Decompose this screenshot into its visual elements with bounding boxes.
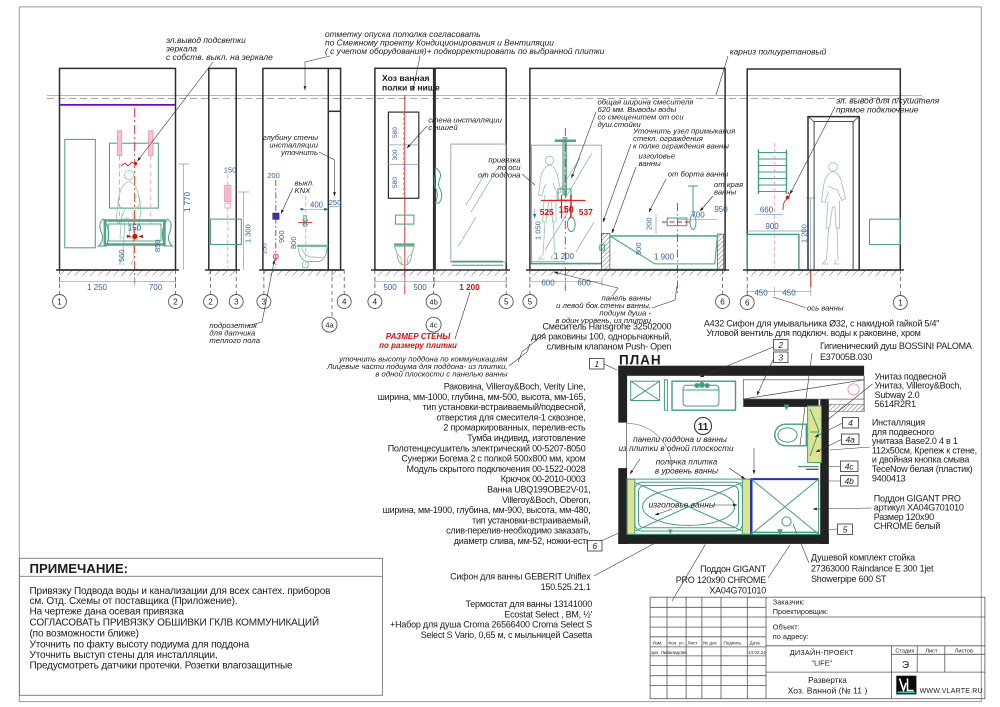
svg-text:4: 4 (342, 298, 347, 307)
svg-text:панели поддона и ванны: панели поддона и ванны (633, 435, 727, 444)
svg-text:700: 700 (691, 211, 705, 220)
svg-text:5: 5 (528, 298, 533, 307)
svg-text:ширина, мм-1900, глубина, мм-9: ширина, мм-1900, глубина, мм-900, высота… (383, 505, 591, 515)
svg-text:Заказчик:: Заказчик: (773, 598, 805, 607)
svg-text:450: 450 (782, 288, 796, 297)
svg-text:Развертка: Развертка (808, 676, 847, 685)
svg-text:Тумба индивид, изготовление: Тумба индивид, изготовление (467, 433, 585, 443)
svg-text:1: 1 (57, 298, 62, 307)
svg-text:Смеситель Hansgrohe 32502000: Смеситель Hansgrohe 32502000 (542, 322, 671, 332)
svg-text:5: 5 (504, 298, 509, 307)
svg-text:560: 560 (117, 249, 126, 262)
svg-text:27363000 Raindance E 300 1jet: 27363000 Raindance E 300 1jet (811, 563, 934, 573)
svg-text:580: 580 (392, 127, 399, 138)
svg-text:800: 800 (634, 242, 643, 255)
svg-text:660: 660 (760, 206, 774, 215)
svg-text:6: 6 (720, 298, 725, 307)
svg-text:в уровень ванны: в уровень ванны (655, 467, 718, 476)
svg-text:4a: 4a (845, 434, 855, 444)
svg-text:150: 150 (128, 224, 142, 233)
svg-text:Поддон GIGANT: Поддон GIGANT (700, 564, 767, 574)
svg-text:полки в нише: полки в нише (382, 83, 440, 93)
svg-text:Предусмотреть датчики протечки: Предусмотреть датчики протечки. Розетки … (30, 661, 294, 672)
svg-text:1 770: 1 770 (183, 191, 192, 212)
svg-text:На чертеже дана осевая привязк: На чертеже дана осевая привязка (30, 607, 185, 618)
svg-text:250: 250 (329, 198, 342, 207)
svg-text:Раковина, Villeroy&Boch, Verit: Раковина, Villeroy&Boch, Verity Line, (444, 382, 586, 392)
svg-text:Уточнить выступ стены для инст: Уточнить выступ стены для инсталляции, (30, 650, 218, 661)
svg-text:Проектировщик:: Проектировщик: (773, 607, 828, 616)
svg-text:1 300: 1 300 (244, 224, 253, 243)
svg-text:Объект:: Объект: (773, 623, 800, 632)
svg-text:537: 537 (579, 207, 593, 217)
svg-text:РАЗМЕР СТЕНЫ: РАЗМЕР СТЕНЫ (386, 332, 451, 341)
svg-text:Изм.: Изм. (653, 640, 663, 645)
svg-text:с нишей: с нишей (428, 123, 458, 132)
svg-text:900: 900 (277, 230, 286, 243)
svg-text:Лист: Лист (688, 640, 699, 645)
svg-text:3: 3 (234, 298, 239, 307)
svg-text:150: 150 (224, 166, 237, 175)
svg-text:4b: 4b (429, 298, 437, 307)
svg-text:CHROME белый: CHROME белый (874, 521, 941, 531)
svg-text:арх. Ливанидова: арх. Ливанидова (651, 650, 687, 655)
svg-text:ванны: ванны (714, 188, 737, 197)
svg-text:2: 2 (173, 298, 178, 307)
svg-text:1: 1 (898, 299, 903, 308)
svg-text:Листов: Листов (955, 648, 973, 654)
svg-text:Угловой вентиль для подключ. в: Угловой вентиль для подключ. воды к рако… (706, 328, 920, 338)
svg-text:Select S Vario, 0,65 м, с мыль: Select S Vario, 0,65 м, с мыльницей Case… (421, 630, 593, 640)
svg-text:+Набор для душа Croma 26566400: +Набор для душа Croma 26566400 Croma Sel… (390, 620, 592, 630)
svg-text:ванны: ванны (639, 159, 662, 168)
svg-text:прямое подключение: прямое подключение (836, 105, 919, 115)
svg-text:ширина, мм-1000, глубина, мм-5: ширина, мм-1000, глубина, мм-500, высота… (378, 392, 586, 402)
svg-text:200: 200 (267, 171, 280, 180)
svg-text:Сифон для ванны GEBERIT Unifle: Сифон для ванны GEBERIT Uniflex (450, 572, 591, 582)
svg-text:500: 500 (413, 283, 427, 292)
svg-text:E37005B.030: E37005B.030 (820, 352, 872, 362)
svg-text:Крючок 00-2010-0003: Крючок 00-2010-0003 (501, 474, 586, 484)
svg-text:950: 950 (714, 205, 728, 214)
svg-text:"LIFE": "LIFE" (812, 659, 833, 668)
svg-text:по размеру плитки: по размеру плитки (379, 341, 457, 350)
svg-text:Хоз ванная: Хоз ванная (382, 73, 430, 83)
svg-text:карниз полиуретановый: карниз полиуретановый (730, 47, 827, 57)
svg-text:Подпись: Подпись (724, 640, 743, 645)
svg-text:тип установки-встраиваемый,: тип установки-встраиваемый, (472, 515, 590, 525)
svg-text:ПРИМЕЧАНИЕ:: ПРИМЕЧАНИЕ: (30, 561, 129, 576)
svg-text:в одной плоскости с панелью в: в одной плоскости с панелью ванны (375, 370, 507, 379)
svg-text:с собств. выкл. на зеркале: с собств. выкл. на зеркале (166, 52, 273, 62)
svg-text:250: 250 (262, 243, 269, 254)
svg-text:700: 700 (149, 283, 163, 292)
svg-text:Лист: Лист (925, 648, 938, 654)
svg-text:ДИЗАЙН-ПРОЕКТ: ДИЗАЙН-ПРОЕКТ (790, 648, 855, 657)
svg-text:1 200: 1 200 (554, 252, 575, 261)
svg-text:400: 400 (310, 201, 324, 210)
svg-text:1 250: 1 250 (87, 283, 108, 292)
svg-text:от борта ванны: от борта ванны (668, 170, 729, 179)
svg-text:Хоз. Ванной (№ 11 ): Хоз. Ванной (№ 11 ) (788, 685, 868, 695)
svg-text:14.02.22: 14.02.22 (748, 650, 766, 655)
svg-text:Термостат для ванны 13141000: Термостат для ванны 13141000 (465, 599, 592, 609)
svg-text:отверстия для смесителя-1 скво: отверстия для смесителя-1 сквозное, (436, 412, 585, 422)
svg-text:теплого пола: теплого пола (209, 336, 260, 345)
svg-text:из плитки в одной плоскости: из плитки в одной плоскости (619, 444, 734, 453)
svg-text:6: 6 (592, 541, 597, 551)
svg-text:полочка плитка: полочка плитка (656, 458, 718, 467)
svg-text:1 200: 1 200 (800, 224, 809, 243)
svg-text:4a: 4a (325, 321, 334, 330)
svg-text:300: 300 (392, 149, 399, 160)
svg-text:WWW.VLARTE.RU: WWW.VLARTE.RU (920, 688, 983, 695)
svg-text:580: 580 (392, 177, 399, 188)
svg-text:Привязку Подвода воды и канали: Привязку Подвода воды и канализации для … (30, 585, 331, 597)
svg-text:Ecostat Select , BM, ½': Ecostat Select , BM, ½' (504, 609, 592, 619)
svg-text:Душевой комплект стойка: Душевой комплект стойка (811, 553, 915, 563)
svg-text:ПЛАН: ПЛАН (619, 353, 662, 368)
svg-text:сливным клапаном Push- Open: сливным клапаном Push- Open (547, 342, 672, 352)
svg-text:для раковины 100, однорычажный: для раковины 100, однорычажный, (531, 332, 671, 342)
svg-text:Дата: Дата (750, 640, 761, 645)
svg-text:800: 800 (289, 236, 298, 249)
svg-text:1 900: 1 900 (654, 253, 675, 262)
svg-text:4: 4 (373, 298, 378, 307)
svg-text:изголовье ванны: изголовье ванны (649, 500, 715, 510)
svg-text:СОГЛАСОВАТЬ ПРИВЯЗКУ ОБШИВКИ Г: СОГЛАСОВАТЬ ПРИВЯЗКУ ОБШИВКИ ГКЛВ КОММУН… (30, 616, 320, 629)
svg-text:Showerpipe 600 ST: Showerpipe 600 ST (811, 574, 887, 584)
svg-text:2: 2 (777, 340, 783, 350)
svg-text:Уточнить по факту высоту подиу: Уточнить по факту высоту подиума для под… (30, 638, 250, 650)
svg-text:1 200: 1 200 (459, 283, 480, 292)
svg-text:тип установки-встраиваемый/под: тип установки-встраиваемый/подвесной, (423, 402, 586, 412)
svg-text:Ванна UBQ199OBE2V-01,: Ванна UBQ199OBE2V-01, (487, 485, 590, 495)
svg-text:150: 150 (559, 205, 574, 215)
svg-text:5: 5 (843, 524, 848, 534)
svg-text:№ док: № док (703, 640, 717, 645)
svg-text:(по возможности ближе): (по возможности ближе) (30, 628, 139, 640)
svg-text:Сунержи Богема 2 с полкой 500x: Сунержи Богема 2 с полкой 500x800 мм, хр… (401, 454, 585, 464)
svg-text:слив-перелив-необходимо заказа: слив-перелив-необходимо заказать, (446, 526, 590, 536)
svg-text:PRO 120x90 CHROME: PRO 120x90 CHROME (676, 575, 767, 585)
svg-text:Э: Э (902, 660, 909, 671)
svg-text:1 050: 1 050 (534, 221, 543, 240)
svg-text:1: 1 (594, 359, 599, 369)
svg-text:450: 450 (754, 288, 768, 297)
svg-text:Полотенцесушитель электрически: Полотенцесушитель электрический 00-5207-… (388, 443, 586, 453)
svg-text:3: 3 (778, 352, 783, 362)
svg-text:Модуль скрытого подключения 00: Модуль скрытого подключения 00-1522-0028 (406, 464, 585, 474)
svg-text:9400413: 9400413 (872, 473, 906, 483)
svg-text:900: 900 (765, 222, 779, 231)
svg-text:11: 11 (698, 422, 709, 433)
svg-text:4: 4 (848, 418, 853, 428)
svg-text:600: 600 (541, 278, 555, 287)
svg-text:ось ванны: ось ванны (807, 304, 844, 313)
svg-text:Кол. уч.: Кол. уч. (669, 640, 685, 645)
svg-text:к полке ограждения ванны: к полке ограждения ванны (633, 142, 729, 151)
svg-text:Стадия: Стадия (895, 648, 914, 654)
svg-text:KNX: KNX (295, 186, 312, 195)
svg-text:от поддона: от поддона (478, 171, 521, 180)
svg-text:850: 850 (153, 239, 162, 252)
svg-text:525: 525 (540, 207, 554, 217)
svg-text:( с учетом оборудования)+ подк: ( с учетом оборудования)+ подкорректиров… (325, 46, 605, 56)
svg-text:2 промаркированных, перелив-ес: 2 промаркированных, перелив-есть (443, 423, 586, 433)
svg-text:см. Отд. Схемы от поставщика (: см. Отд. Схемы от поставщика (Приложение… (30, 596, 238, 607)
svg-text:6: 6 (745, 299, 750, 308)
svg-text:XA04G701010: XA04G701010 (709, 586, 766, 596)
svg-text:2: 2 (208, 298, 213, 307)
svg-text:5614R2R1: 5614R2R1 (875, 399, 916, 409)
svg-text:по адресу:: по адресу: (773, 632, 809, 641)
svg-text:200: 200 (645, 217, 654, 230)
svg-text:Villeroy&Boch, Oberon,: Villeroy&Boch, Oberon, (502, 495, 591, 505)
svg-text:150.525.21.1: 150.525.21.1 (541, 582, 591, 592)
svg-text:диаметр слива, мм-52, ножки-ес: диаметр слива, мм-52, ножки-есть (454, 536, 591, 546)
svg-text:уточнить: уточнить (280, 148, 318, 157)
svg-text:Гигиенический душ BOSSINI PALO: Гигиенический душ BOSSINI PALOMA (820, 341, 972, 351)
svg-text:4c: 4c (430, 321, 438, 330)
svg-text:4b: 4b (844, 476, 854, 486)
svg-text:500: 500 (383, 283, 397, 292)
svg-text:4c: 4c (845, 461, 855, 471)
